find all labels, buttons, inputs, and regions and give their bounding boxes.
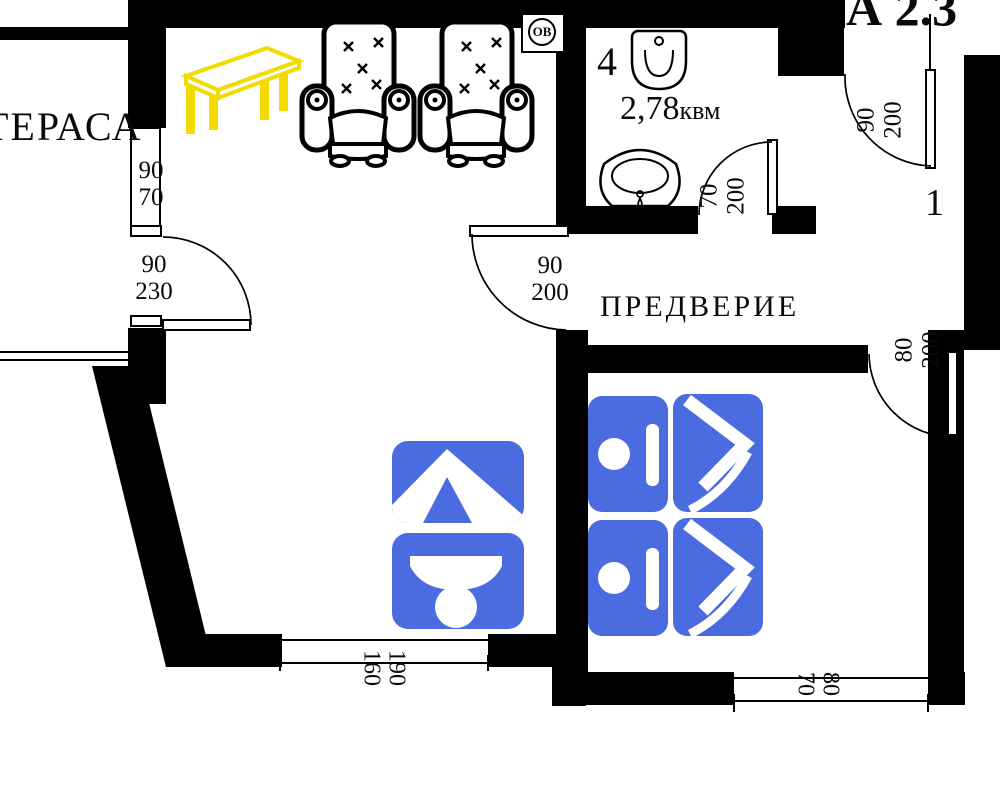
dim-bedroom-door: 80 200 [892, 331, 945, 369]
armchair [420, 22, 532, 166]
shaft-symbol: ОВ [528, 18, 556, 46]
dim-height: 160 [358, 650, 383, 686]
entry-door [845, 14, 935, 168]
dim-living-vestibule-door: 90 200 [524, 253, 576, 306]
dim-height: 200 [524, 280, 576, 307]
dim-entry-door: 90 200 [854, 101, 907, 139]
wall-diagonal [92, 366, 206, 667]
bathroom-area-unit: квм [680, 96, 721, 125]
toilet [632, 31, 686, 89]
dim-width: 70 [697, 177, 724, 215]
shaft-notch: ОВ [521, 13, 565, 53]
dim-height: 70 [133, 185, 169, 212]
dim-height: 230 [130, 279, 178, 306]
room-label-terrace: ТЕРАСА [0, 103, 142, 150]
plan-title: А 2.3 [846, 0, 957, 37]
dim-width: 80 [817, 672, 842, 696]
dim-width: 90 [854, 101, 881, 139]
bed-icon [588, 394, 763, 512]
cabinet-icon [392, 441, 524, 629]
door-leaf [470, 226, 568, 236]
plan-drawing [0, 0, 1000, 793]
bathroom-area-value: 2,78 [620, 90, 680, 127]
dim-terrace-door: 90 230 [130, 252, 178, 305]
floor-plan: А 2.3 ТЕРАСА ПРЕДВЕРИЕ 4 2,78квм 1 90 70… [0, 0, 1000, 793]
dim-bathroom-door: 70 200 [697, 177, 750, 215]
dim-bedroom-window: 80 70 [792, 672, 843, 696]
dim-height: 200 [918, 331, 945, 369]
dim-height: 200 [880, 101, 907, 139]
dim-height: 70 [792, 672, 817, 696]
dim-width: 190 [383, 650, 408, 686]
terrace-railing [0, 352, 133, 360]
room-number-entry: 1 [925, 181, 944, 225]
room-number-bathroom: 4 [597, 38, 617, 85]
coffee-table [186, 48, 299, 134]
dim-width: 90 [524, 253, 576, 280]
dim-terrace-window: 90 70 [133, 158, 169, 211]
dim-width: 90 [130, 252, 178, 279]
sink [600, 150, 679, 211]
room-label-vestibule: ПРЕДВЕРИЕ [600, 290, 799, 324]
door-leaf [163, 320, 250, 330]
bed-icon [588, 518, 763, 636]
dim-width: 80 [892, 331, 919, 369]
door-leaf [948, 352, 957, 435]
door-leaf [768, 140, 777, 214]
armchair [302, 22, 414, 166]
dim-width: 90 [133, 158, 169, 185]
bathroom-area: 2,78квм [620, 90, 720, 128]
dim-height: 200 [723, 177, 750, 215]
dim-living-window: 190 160 [358, 650, 409, 686]
door-leaf [926, 70, 935, 168]
